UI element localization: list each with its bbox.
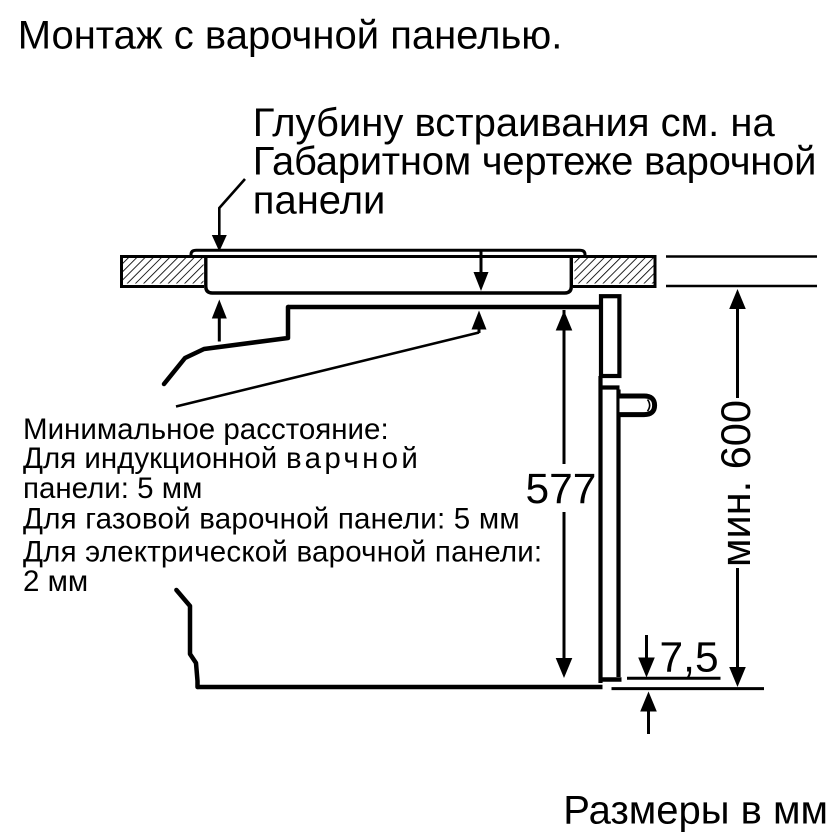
- svg-text:Для газовой варочной панели: 5: Для газовой варочной панели: 5 мм: [23, 502, 520, 535]
- svg-text:панели: 5 мм: панели: 5 мм: [23, 472, 202, 505]
- svg-text:Глубину встраивания см. на: Глубину встраивания см. на: [253, 101, 776, 145]
- svg-text:мин. 600: мин. 600: [712, 400, 759, 567]
- svg-text:577: 577: [526, 466, 597, 513]
- svg-text:варчной: варчной: [286, 442, 421, 475]
- svg-text:Монтаж с варочной панелью.: Монтаж с варочной панелью.: [18, 14, 563, 58]
- svg-text:Для электрической варочной пан: Для электрической варочной панели:: [23, 535, 542, 568]
- svg-text:7,5: 7,5: [660, 635, 719, 682]
- svg-text:Для индукционной: Для индукционной: [23, 442, 277, 475]
- svg-text:Габаритном чертеже варочной: Габаритном чертеже варочной: [253, 140, 816, 184]
- svg-text:Размеры в мм: Размеры в мм: [563, 789, 828, 833]
- svg-text:2 мм: 2 мм: [23, 565, 88, 598]
- svg-text:панели: панели: [253, 178, 386, 222]
